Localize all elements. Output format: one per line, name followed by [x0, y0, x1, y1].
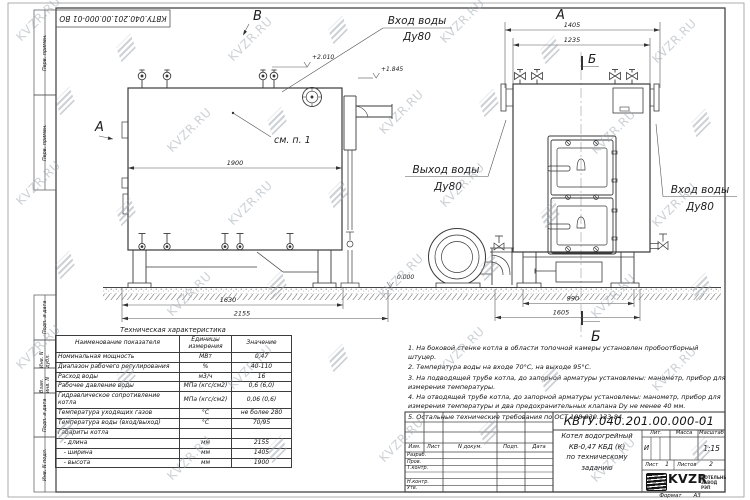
note-line: 1. На боковой стенке котла в области топ… [408, 344, 726, 362]
section-marker-b-bottom: Б [591, 329, 601, 345]
valve-icon [515, 70, 526, 85]
inlet-label-top: Вход воды [388, 15, 447, 27]
manhole-flange-icon [303, 88, 322, 107]
spec-row: Рабочее давление водыМПа (кгс/см2)0,6 (6… [56, 382, 292, 392]
company-name-line: ЗАВОД РЭП [701, 480, 726, 489]
mass-value [670, 437, 698, 460]
view-marker-v: В [253, 9, 262, 24]
format-value: А3 [694, 493, 701, 499]
product-line: по техническому заданию [554, 452, 640, 473]
spec-row: Габариты котла [56, 428, 292, 438]
margin-label: Взам. инв. N [34, 368, 56, 393]
margin-label: Перв. примен. [34, 95, 56, 190]
blower-fan [429, 229, 493, 288]
spec-cell: 2155 [232, 438, 292, 448]
elevation-flue: +1.845 [381, 66, 403, 73]
valve-icon [138, 70, 146, 88]
spec-cell: Рабочее давление воды [56, 382, 180, 392]
spec-table-title: Техническая характеристика [55, 326, 291, 334]
scale-value: 1:15 [698, 437, 725, 460]
spec-cell: °С [180, 419, 232, 429]
drain-valve-icon [237, 234, 244, 250]
margin-label: Инв. N подл. [34, 437, 56, 492]
spec-cell: Гидравлическое сопротивление котла [56, 392, 180, 409]
row-tkontr: Т.контр. [407, 465, 443, 472]
spec-cell: 70/95 [232, 419, 292, 429]
spec-header-cell: Наименование показателя [56, 336, 180, 353]
format-label: Формат А3 [630, 492, 730, 500]
valve-icon [163, 70, 171, 88]
section-marker-a: А [94, 120, 104, 135]
note-line: 4. На отводящей трубе котла, до запорной… [408, 393, 726, 411]
elevation-zero: 0.000 [397, 274, 414, 281]
spec-cell: - ширина [56, 448, 180, 458]
spec-cell: 0,6 (6,0) [232, 382, 292, 392]
spec-cell: Температура воды (вход/выход) [56, 419, 180, 429]
col-podp: Подп. [497, 443, 525, 452]
dim-2155: 2155 [234, 310, 251, 318]
annotation-lines [99, 24, 452, 287]
sheets-label: Листов [677, 460, 701, 470]
spec-table-block: Техническая характеристика Наименование … [55, 326, 291, 468]
margin-label: Подп. и дата [34, 295, 56, 340]
inlet-label-right: Вход воды [671, 184, 730, 196]
inlet-dn-top: Ду80 [402, 31, 431, 43]
spec-cell [180, 428, 232, 438]
section-marker-b-top: Б [588, 52, 596, 66]
boiler-body [128, 88, 342, 250]
spec-cell: 0,06 (0,6) [232, 392, 292, 409]
boiler-front [513, 84, 650, 252]
outlet-dn: Ду80 [433, 181, 462, 193]
spec-row: - высотамм1900 [56, 458, 292, 468]
ground-hatch [103, 288, 721, 301]
product-name: Котел водогрейный КВ-0,47 КБД (К) по тех… [554, 431, 640, 473]
drain-valve-icon [650, 234, 668, 250]
drain-valve-icon [287, 234, 294, 250]
valve-icon [259, 70, 267, 88]
spec-cell: Диапазон рабочего регулирования [56, 362, 180, 372]
dim-1900: 1900 [227, 159, 244, 167]
dim-1235: 1235 [564, 36, 581, 44]
spec-cell: - высота [56, 458, 180, 468]
spec-cell: м3/ч [180, 372, 232, 382]
nameplate-panel [613, 88, 643, 113]
spec-header-cell: Единицы измерения [180, 336, 232, 353]
scale-label: Масштаб [698, 430, 725, 437]
spec-row: Расход водым3/ч16 [56, 372, 292, 382]
margin-label: Подп. и дата [34, 393, 56, 437]
base-frame [517, 252, 639, 288]
dim-1605: 1605 [553, 309, 570, 317]
spec-cell: Расход воды [56, 372, 180, 382]
spec-cell: мм [180, 448, 232, 458]
note-line: 2. Температура воды на входе 70°С, на вы… [408, 363, 726, 372]
drain-valve-icon [222, 234, 229, 250]
spec-cell: мм [180, 438, 232, 448]
spec-row: Температура уходящих газов°Сне более 280 [56, 409, 292, 419]
margin-label: Перв. примен. [34, 10, 56, 95]
valve-icon [532, 70, 543, 85]
product-line: КВ-0,47 КБД (К) [554, 442, 640, 453]
valve-icon [270, 70, 278, 88]
valve-icon [610, 70, 621, 85]
top-stamp-number: КВТУ.040.201.00.000-01 ВО [56, 10, 170, 27]
spec-cell: МПа (кгс/см2) [180, 392, 232, 409]
spec-cell: °С [180, 409, 232, 419]
spec-cell: 1405 [232, 448, 292, 458]
flue-duct [341, 96, 392, 288]
row-utv: Утв. [407, 485, 443, 492]
spec-row: Температура воды (вход/выход)°С70/95 [56, 419, 292, 429]
spec-cell: 1900 [232, 458, 292, 468]
spec-cell: МПа (кгс/см2) [180, 382, 232, 392]
inlet-dn-right: Ду80 [685, 201, 714, 213]
spec-cell: МВт [180, 352, 232, 362]
spec-header-cell: Значение [232, 336, 292, 353]
spec-cell: % [180, 362, 232, 372]
drain-valve-icon [164, 234, 171, 250]
doc-number: КВТУ.040.201.00.000-01 ВО [553, 412, 725, 430]
row-empty [407, 472, 443, 479]
air-duct-elbow [490, 236, 514, 285]
format-word: Формат [659, 493, 681, 499]
spec-row: Диапазон рабочего регулирования%40-110 [56, 362, 292, 372]
spec-cell [232, 428, 292, 438]
kvzr-logo-icon [646, 473, 667, 491]
col-list: Лист [424, 443, 443, 452]
drain-valve-icon [139, 234, 146, 250]
dim-990: 990 [567, 295, 579, 303]
drawing-sheet: В А А Б Б Вход воды Ду80 Выход воды Ду80… [0, 0, 750, 500]
dimension-lines [495, 22, 660, 321]
spec-row: - длинамм2155 [56, 438, 292, 448]
spec-header-row: Наименование показателяЕдиницы измерения… [56, 336, 292, 353]
outlet-flange [501, 84, 513, 111]
spec-cell: Номинальная мощность [56, 352, 180, 362]
sheet-value: 1 [661, 460, 673, 470]
dim-1630: 1630 [220, 296, 237, 304]
spec-cell: Габариты котла [56, 428, 180, 438]
spec-cell: Температура уходящих газов [56, 409, 180, 419]
elevation-top: +2.010 [312, 54, 334, 61]
lit-value: И [642, 437, 651, 460]
inlet-flange [650, 84, 659, 111]
spec-table: Наименование показателяЕдиницы измерения… [55, 335, 292, 468]
spec-cell: - длина [56, 438, 180, 448]
col-ndoc: N докум. [443, 443, 497, 452]
col-izm: Изм. [405, 443, 424, 452]
spec-row: Гидравлическое сопротивление котлаМПа (к… [56, 392, 292, 409]
product-line: Котел водогрейный [554, 431, 640, 442]
spec-row: Номинальная мощностьМВт0,47 [56, 352, 292, 362]
technical-notes: 1. На боковой стенке котла в области топ… [408, 344, 726, 423]
col-data: Дата [525, 443, 553, 452]
spec-cell: мм [180, 458, 232, 468]
lit-label: Лит. [642, 430, 670, 437]
boiler-supports [128, 250, 336, 288]
margin-label: Инв. N дубл. [34, 340, 56, 368]
spec-cell: 16 [232, 372, 292, 382]
company-name: КОТЕЛЬНЫЙ ЗАВОД РЭП [701, 475, 726, 489]
mass-label: Масса [670, 430, 698, 437]
outlet-label: Выход воды [413, 164, 480, 176]
furnace-doors [548, 136, 617, 254]
dim-1405: 1405 [564, 21, 581, 29]
spec-row: - ширинамм1405 [56, 448, 292, 458]
note-line: 3. На подводящей трубе котла, до запорно… [408, 374, 726, 392]
spec-cell: 0,47 [232, 352, 292, 362]
spec-cell: 40-110 [232, 362, 292, 372]
row-razrab: Разраб. [407, 452, 443, 459]
valve-icon [627, 70, 638, 85]
sheets-value: 2 [703, 460, 719, 470]
see-note-label: см. п. 1 [274, 135, 311, 146]
spec-cell: не более 280 [232, 409, 292, 419]
